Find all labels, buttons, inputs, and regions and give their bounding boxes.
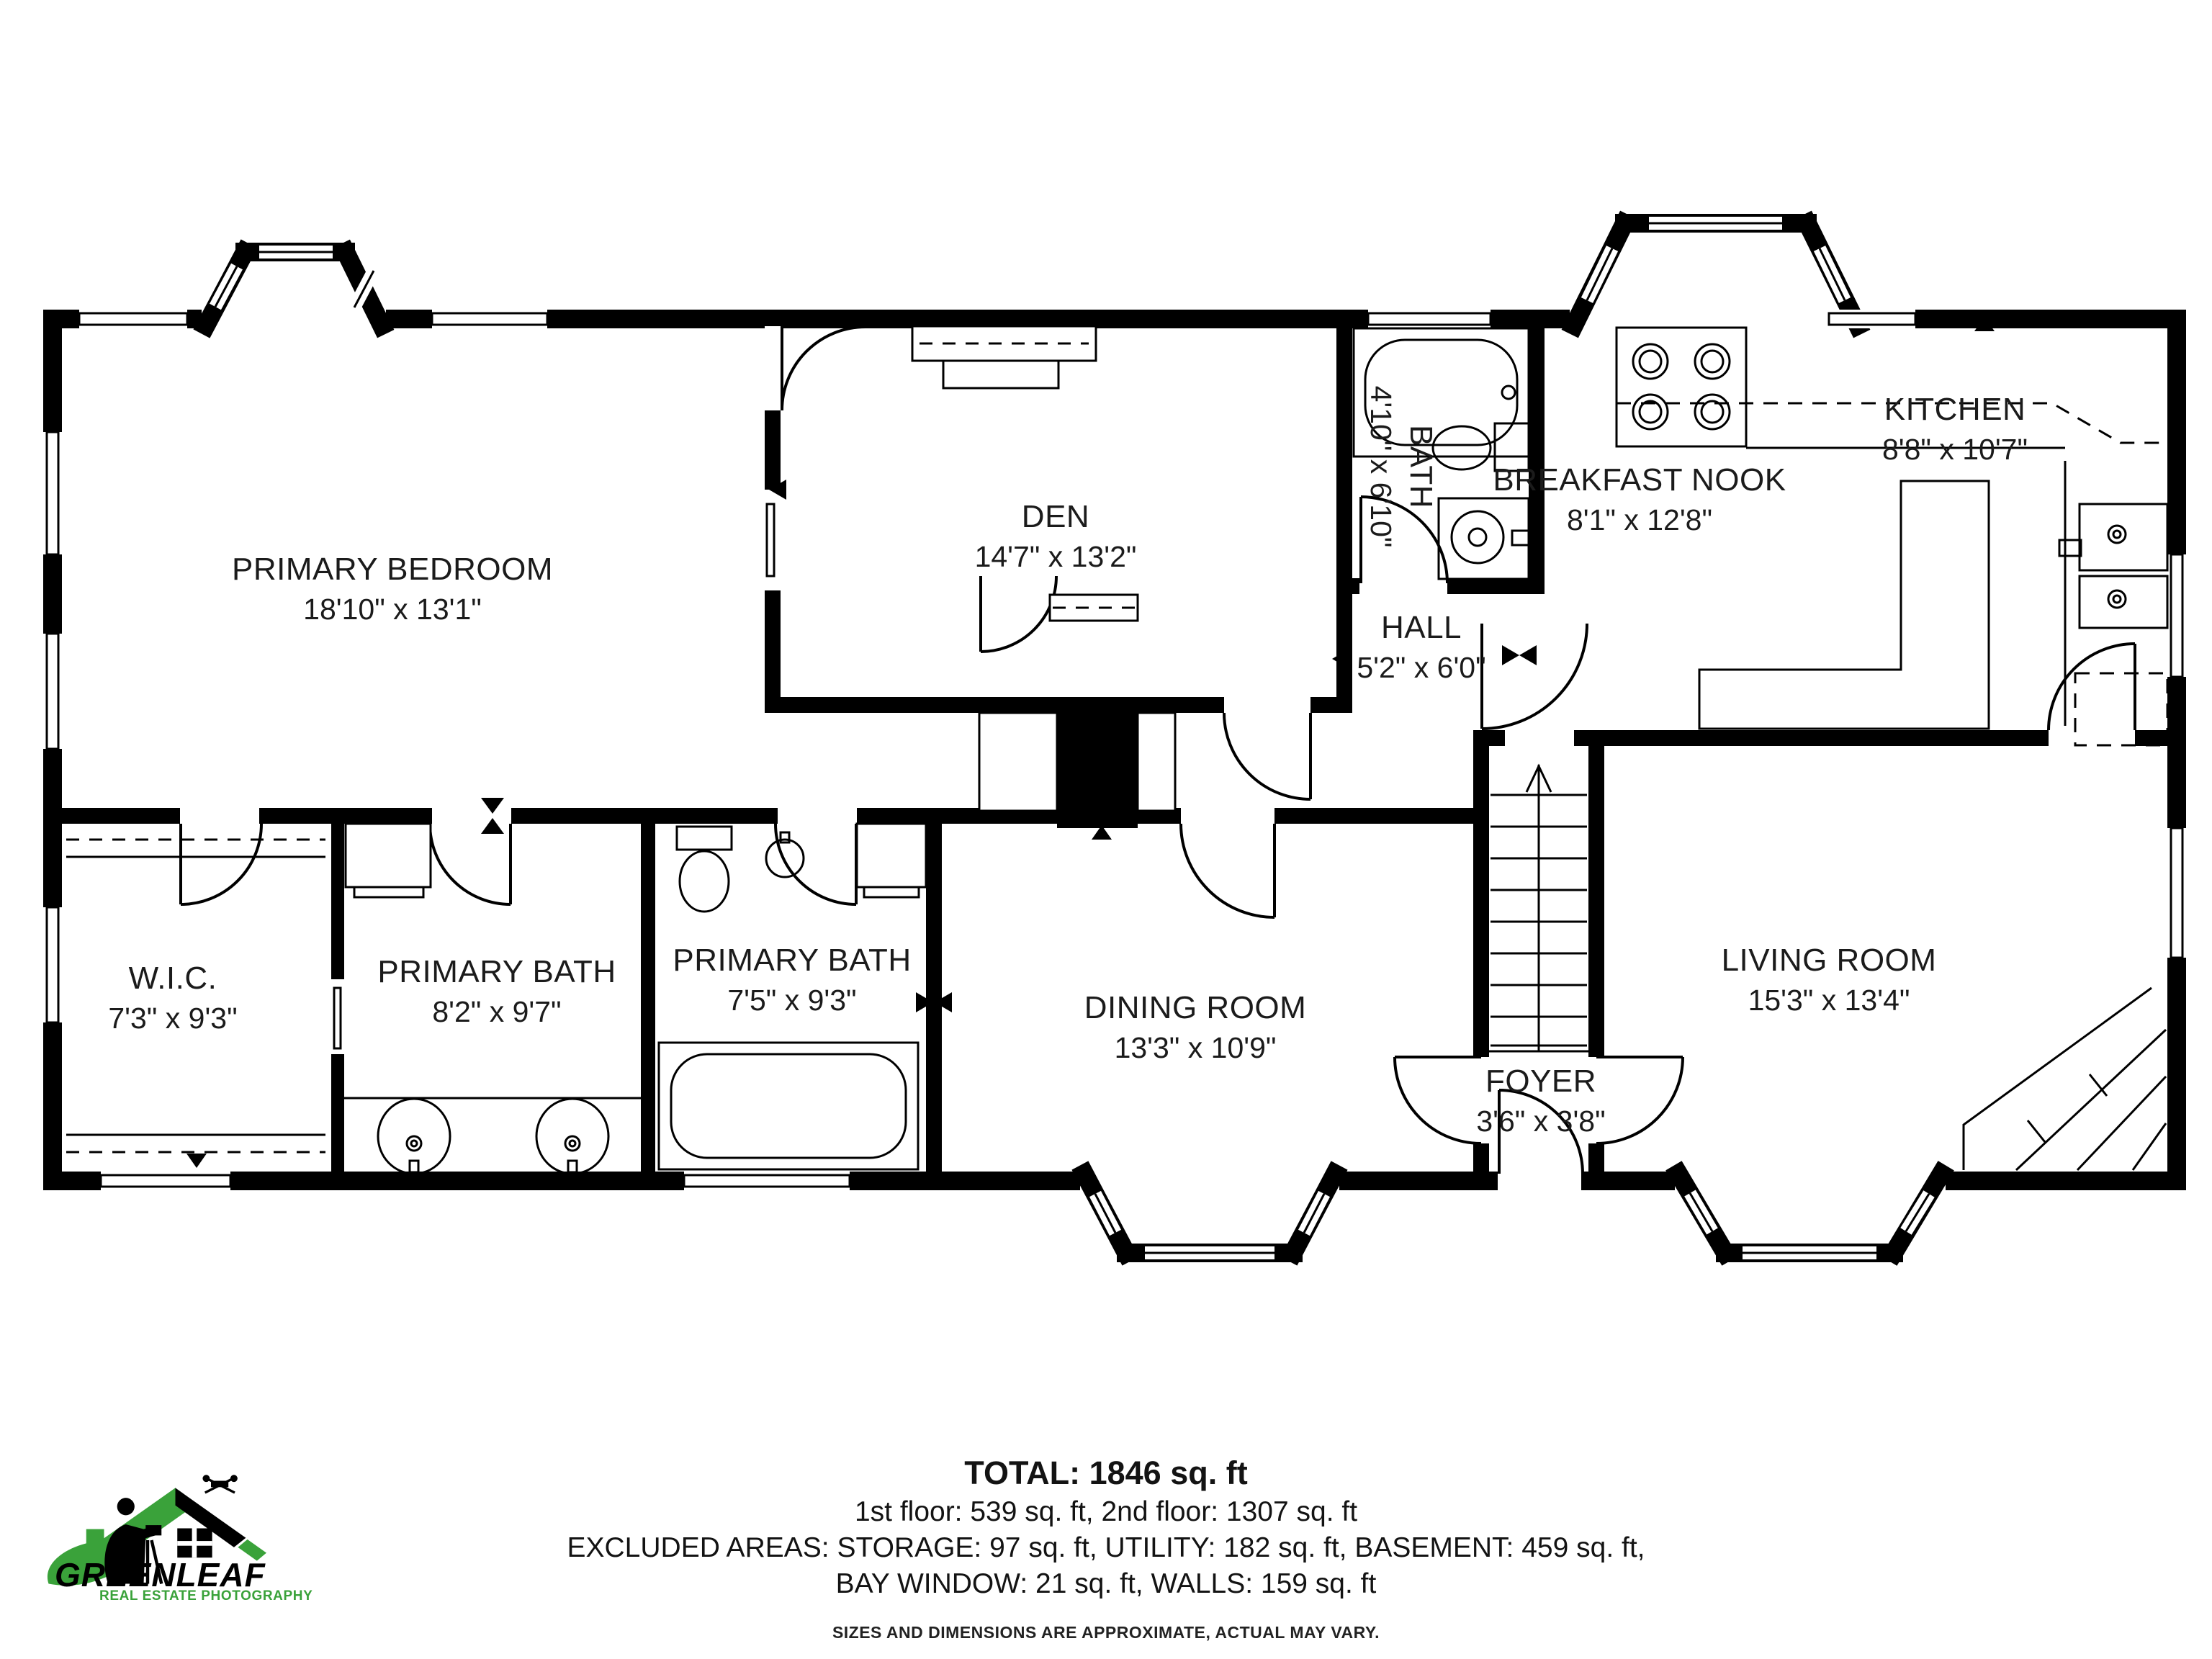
room-label-primary-bedroom: PRIMARY BEDROOM 18'10" x 13'1" bbox=[232, 551, 553, 627]
excluded-areas-line1: EXCLUDED AREAS: STORAGE: 97 sq. ft, UTIL… bbox=[0, 1532, 2212, 1564]
room-name: W.I.C. bbox=[108, 960, 237, 998]
room-label-den: DEN 14'7" x 13'2" bbox=[975, 498, 1137, 575]
room-label-bath: BATH 4'10" x 6'10" bbox=[1363, 386, 1439, 548]
stairs bbox=[1489, 765, 1588, 1051]
area-summary: TOTAL: 1846 sq. ft 1st floor: 539 sq. ft… bbox=[0, 1455, 2212, 1642]
room-label-primary-bath-2: PRIMARY BATH 7'5" x 9'3" bbox=[673, 942, 911, 1018]
floor-plan-page: PRIMARY BEDROOM 18'10" x 13'1" DEN 14'7"… bbox=[0, 0, 2212, 1659]
room-dimensions: 8'2" x 9'7" bbox=[377, 994, 616, 1030]
room-label-living-room: LIVING ROOM 15'3" x 13'4" bbox=[1722, 942, 1937, 1018]
room-label-breakfast-nook: BREAKFAST NOOK 8'1" x 12'8" bbox=[1493, 462, 1786, 538]
room-name: BATH bbox=[1401, 386, 1439, 548]
logo-tagline: REAL ESTATE PHOTOGRAPHY bbox=[99, 1588, 313, 1604]
room-dimensions: 4'10" x 6'10" bbox=[1363, 386, 1398, 548]
room-label-kitchen: KITCHEN 8'8" x 10'7" bbox=[1882, 391, 2028, 467]
room-label-foyer: FOYER 3'6" x 3'8" bbox=[1476, 1063, 1605, 1139]
room-name: DEN bbox=[975, 498, 1137, 536]
room-label-primary-bath-1: PRIMARY BATH 8'2" x 9'7" bbox=[377, 953, 616, 1030]
room-dimensions: 14'7" x 13'2" bbox=[975, 539, 1137, 575]
room-name: FOYER bbox=[1476, 1063, 1605, 1101]
room-name: BREAKFAST NOOK bbox=[1493, 462, 1786, 500]
disclaimer: SIZES AND DIMENSIONS ARE APPROXIMATE, AC… bbox=[0, 1623, 2212, 1642]
room-dimensions: 18'10" x 13'1" bbox=[232, 592, 553, 627]
room-label-hall: HALL 5'2" x 6'0" bbox=[1357, 609, 1485, 685]
excluded-areas-line2: BAY WINDOW: 21 sq. ft, WALLS: 159 sq. ft bbox=[0, 1568, 2212, 1600]
room-dimensions: 8'8" x 10'7" bbox=[1882, 432, 2028, 467]
room-dimensions: 13'3" x 10'9" bbox=[1084, 1030, 1307, 1066]
room-dimensions: 5'2" x 6'0" bbox=[1357, 650, 1485, 685]
floor-areas: 1st floor: 539 sq. ft, 2nd floor: 1307 s… bbox=[0, 1496, 2212, 1528]
room-dimensions: 3'6" x 3'8" bbox=[1476, 1104, 1605, 1139]
room-label-wic: W.I.C. 7'3" x 9'3" bbox=[108, 960, 237, 1036]
primary-bath1-fixtures bbox=[344, 1098, 641, 1174]
room-name: DINING ROOM bbox=[1084, 989, 1307, 1028]
room-dimensions: 7'5" x 9'3" bbox=[673, 983, 911, 1018]
room-dimensions: 7'3" x 9'3" bbox=[108, 1001, 237, 1036]
floor-plan-drawing bbox=[0, 0, 2212, 1659]
room-dimensions: 8'1" x 12'8" bbox=[1493, 503, 1786, 538]
room-name: PRIMARY BEDROOM bbox=[232, 551, 553, 589]
room-name: PRIMARY BATH bbox=[377, 953, 616, 992]
room-name: HALL bbox=[1357, 609, 1485, 647]
room-dimensions: 15'3" x 13'4" bbox=[1722, 983, 1937, 1018]
fireplace bbox=[1964, 988, 2166, 1170]
room-name: PRIMARY BATH bbox=[673, 942, 911, 980]
room-name: KITCHEN bbox=[1882, 391, 2028, 429]
room-name: LIVING ROOM bbox=[1722, 942, 1937, 980]
room-label-dining-room: DINING ROOM 13'3" x 10'9" bbox=[1084, 989, 1307, 1066]
total-area: TOTAL: 1846 sq. ft bbox=[0, 1455, 2212, 1492]
